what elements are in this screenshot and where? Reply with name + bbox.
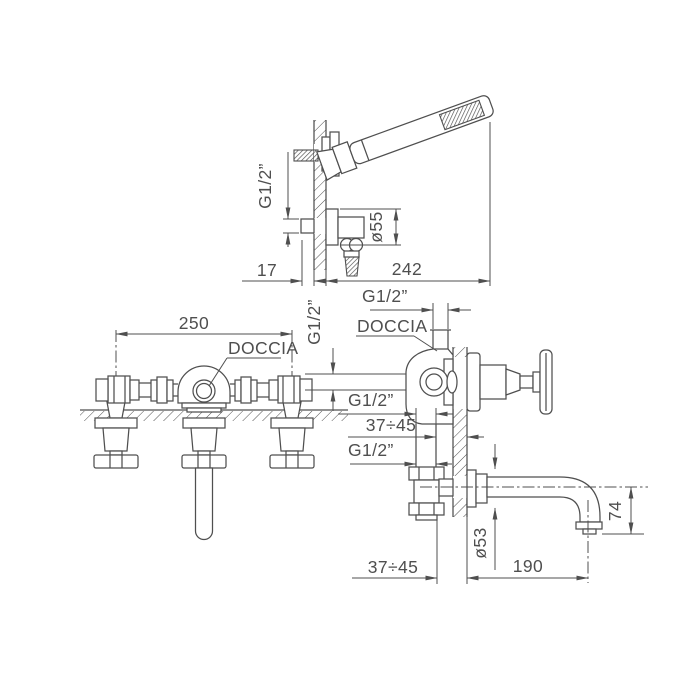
wall-screw <box>294 150 318 161</box>
hand-shower <box>317 90 496 180</box>
dim-label-242: 242 <box>392 259 422 279</box>
dim-label-thread-top: G1/2” <box>362 286 408 306</box>
dim-label-depth-upper: 37÷45 <box>366 415 417 435</box>
dim-label-thread-mid: G1/2” <box>348 390 394 410</box>
lower-hose-fitting <box>409 467 453 520</box>
dim-label-thread-low: G1/2” <box>348 440 394 460</box>
spout-outlet <box>583 529 596 534</box>
dim-label-190: 190 <box>513 556 543 576</box>
dim-250: 250 <box>116 313 292 334</box>
dim-label-flange-53: ø53 <box>470 527 490 558</box>
valve-trim-handle <box>467 350 552 414</box>
dim-drop-74: 74 <box>602 487 644 534</box>
dim-label-depth-lower: 37÷45 <box>368 557 419 577</box>
valve-body-side <box>406 330 457 467</box>
doccia-label-front: DOCCIA <box>228 338 298 358</box>
center-valve-stem <box>182 418 226 540</box>
right-valve-stem <box>270 418 314 468</box>
wall-spout <box>467 470 602 534</box>
dim-label-thread-stub: G1/2” <box>255 163 275 209</box>
hose-drop-tube <box>196 468 213 540</box>
left-valve-stem <box>94 418 138 468</box>
doccia-label-side: DOCCIA <box>357 316 427 336</box>
wall-elbow <box>301 209 364 276</box>
dim-label-flange-55: ø55 <box>366 211 386 242</box>
dim-label-drop-74: 74 <box>605 501 625 521</box>
drawing-canvas: G1/2” ø55 17 242 250 <box>0 0 700 700</box>
dim-label-17: 17 <box>257 260 277 280</box>
hand-shower-detail-view: G1/2” ø55 17 242 <box>242 90 496 286</box>
front-view: 250 <box>80 313 348 540</box>
dim-thread-stub: G1/2” <box>255 152 299 247</box>
dim-label-thread-side: G1/2” <box>304 299 324 345</box>
technical-drawing-page: G1/2” ø55 17 242 250 <box>0 0 700 700</box>
side-view: G1/2” DOCCIA G1/2” G1/2” 37÷45 <box>304 286 648 584</box>
doccia-callout-side: DOCCIA <box>356 316 437 351</box>
hose-thread <box>345 257 359 276</box>
dim-label-250: 250 <box>179 313 209 333</box>
central-diverter-body <box>178 366 230 412</box>
